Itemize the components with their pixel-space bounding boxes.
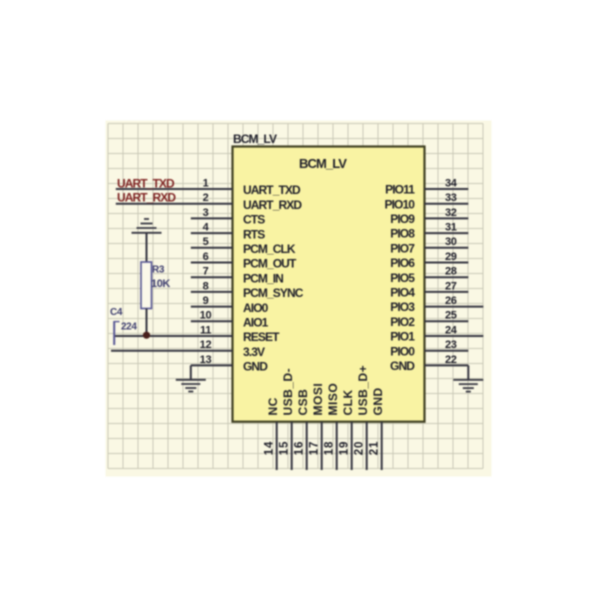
svg-text:7: 7 bbox=[203, 266, 209, 278]
svg-text:CSB: CSB bbox=[296, 389, 310, 416]
svg-text:16: 16 bbox=[294, 441, 306, 455]
svg-text:PIO6: PIO6 bbox=[390, 256, 415, 270]
svg-text:8: 8 bbox=[203, 280, 209, 292]
svg-text:PCM_IN: PCM_IN bbox=[243, 271, 283, 285]
svg-text:UART_RXD: UART_RXD bbox=[117, 191, 176, 205]
svg-text:5: 5 bbox=[203, 236, 209, 248]
svg-text:PCM_CLK: PCM_CLK bbox=[243, 242, 296, 256]
svg-text:25: 25 bbox=[445, 310, 457, 322]
svg-text:PIO8: PIO8 bbox=[390, 227, 415, 241]
svg-text:USB_D+: USB_D+ bbox=[356, 365, 370, 416]
svg-text:PIO0: PIO0 bbox=[390, 344, 415, 358]
svg-text:BCM_LV: BCM_LV bbox=[233, 132, 277, 146]
svg-text:20: 20 bbox=[354, 441, 366, 455]
svg-text:6: 6 bbox=[203, 251, 209, 263]
svg-text:UART_TXD: UART_TXD bbox=[117, 177, 175, 191]
svg-text:C4: C4 bbox=[110, 307, 123, 318]
svg-text:RESET: RESET bbox=[243, 330, 280, 344]
svg-text:CTS: CTS bbox=[243, 213, 265, 227]
svg-text:PCM_OUT: PCM_OUT bbox=[243, 257, 297, 271]
svg-text:9: 9 bbox=[203, 295, 209, 307]
svg-text:22: 22 bbox=[445, 354, 457, 366]
svg-text:13: 13 bbox=[200, 354, 212, 366]
svg-text:AIO0: AIO0 bbox=[243, 301, 269, 315]
svg-text:PIO5: PIO5 bbox=[390, 271, 415, 285]
svg-text:PIO1: PIO1 bbox=[390, 330, 415, 344]
svg-text:1: 1 bbox=[203, 177, 209, 189]
svg-text:R3: R3 bbox=[152, 265, 165, 276]
svg-text:30: 30 bbox=[445, 236, 457, 248]
svg-text:17: 17 bbox=[309, 441, 321, 455]
svg-text:27: 27 bbox=[445, 280, 457, 292]
svg-text:CLK: CLK bbox=[341, 389, 355, 415]
svg-text:11: 11 bbox=[200, 324, 211, 336]
svg-text:15: 15 bbox=[279, 441, 291, 455]
svg-text:2: 2 bbox=[203, 192, 209, 204]
svg-text:3: 3 bbox=[203, 207, 209, 219]
svg-text:28: 28 bbox=[445, 266, 457, 278]
svg-text:10K: 10K bbox=[151, 278, 170, 290]
svg-text:PIO4: PIO4 bbox=[390, 286, 415, 300]
svg-text:34: 34 bbox=[445, 177, 458, 189]
svg-text:12: 12 bbox=[200, 339, 212, 351]
svg-text:18: 18 bbox=[324, 441, 336, 455]
svg-text:PIO10: PIO10 bbox=[384, 197, 415, 211]
svg-text:32: 32 bbox=[445, 207, 457, 219]
svg-text:3.3V: 3.3V bbox=[243, 345, 265, 359]
svg-text:19: 19 bbox=[339, 441, 351, 455]
svg-text:PIO7: PIO7 bbox=[390, 241, 415, 255]
svg-text:UART_RXD: UART_RXD bbox=[243, 198, 302, 212]
svg-text:PIO11: PIO11 bbox=[385, 183, 415, 197]
svg-text:GND: GND bbox=[243, 360, 268, 374]
svg-text:26: 26 bbox=[445, 295, 457, 307]
svg-text:BCM_LV: BCM_LV bbox=[299, 156, 347, 171]
svg-text:224: 224 bbox=[121, 322, 137, 333]
svg-text:33: 33 bbox=[445, 192, 457, 204]
svg-text:USB_D-: USB_D- bbox=[281, 368, 295, 416]
svg-text:AIO1: AIO1 bbox=[243, 316, 269, 330]
svg-text:24: 24 bbox=[445, 324, 458, 336]
svg-text:UART_TXD: UART_TXD bbox=[243, 183, 301, 197]
svg-text:29: 29 bbox=[445, 251, 457, 263]
svg-text:MISO: MISO bbox=[326, 383, 340, 416]
svg-text:31: 31 bbox=[445, 222, 457, 234]
svg-text:RTS: RTS bbox=[243, 227, 265, 241]
svg-text:10: 10 bbox=[200, 310, 212, 322]
svg-text:PIO9: PIO9 bbox=[390, 212, 415, 226]
svg-text:MOSI: MOSI bbox=[311, 383, 325, 416]
svg-text:GND: GND bbox=[371, 387, 385, 415]
svg-text:PCM_SYNC: PCM_SYNC bbox=[243, 286, 304, 300]
svg-text:PIO3: PIO3 bbox=[390, 300, 415, 314]
svg-text:PIO2: PIO2 bbox=[390, 315, 415, 329]
svg-text:21: 21 bbox=[369, 441, 381, 455]
svg-text:23: 23 bbox=[445, 339, 457, 351]
svg-text:GND: GND bbox=[390, 359, 415, 373]
svg-text:14: 14 bbox=[264, 441, 276, 455]
svg-text:NC: NC bbox=[266, 397, 280, 415]
